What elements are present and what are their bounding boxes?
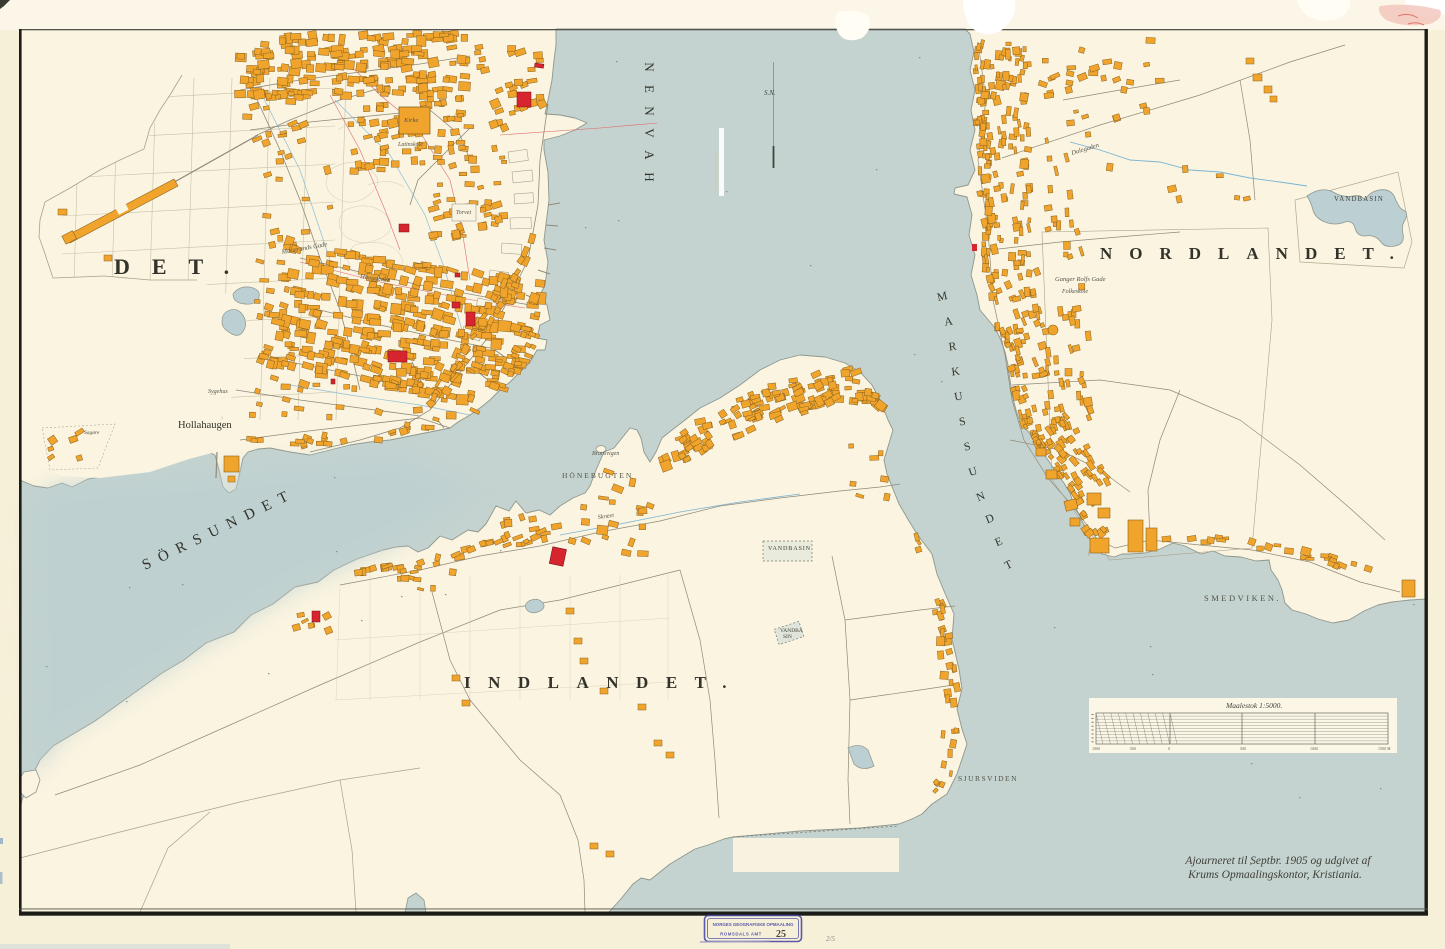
svg-text:Hollahaugen: Hollahaugen	[178, 420, 232, 431]
svg-text:Brunsvigen: Brunsvigen	[592, 451, 619, 457]
svg-text:500: 500	[1240, 746, 1246, 751]
svg-text:ROMSDALS AMT: ROMSDALS AMT	[720, 931, 762, 936]
svg-text:A: A	[642, 150, 657, 160]
svg-text:SMEDVIKEN.: SMEDVIKEN.	[1204, 593, 1281, 603]
svg-text:Krums Opmaalingskontor, Kristi: Krums Opmaalingskontor, Kristiania.	[1187, 869, 1362, 881]
svg-text:500: 500	[1130, 746, 1136, 751]
svg-text:1000: 1000	[1092, 746, 1100, 751]
svg-text:Sagøre: Sagøre	[84, 430, 100, 436]
svg-text:Maalestok 1:5000.: Maalestok 1:5000.	[1225, 701, 1282, 710]
svg-text:Folkeskole: Folkeskole	[1061, 289, 1088, 295]
svg-text:DET.: DET.	[114, 254, 251, 279]
svg-text:NORGES GEOGRAFISKE OPMAALING: NORGES GEOGRAFISKE OPMAALING	[713, 922, 794, 927]
svg-text:1500 M.: 1500 M.	[1378, 746, 1391, 751]
svg-text:2/5: 2/5	[826, 935, 835, 943]
svg-text:H: H	[642, 172, 657, 181]
svg-text:Torvet: Torvet	[456, 210, 471, 216]
svg-text:VANDBASIN: VANDBASIN	[768, 545, 811, 552]
svg-text:S.N.: S.N.	[764, 89, 776, 97]
svg-text:0: 0	[1168, 746, 1170, 751]
svg-text:E: E	[642, 85, 657, 93]
svg-text:Ajourneret til Septbr. 1905 og: Ajourneret til Septbr. 1905 og udgivet a…	[1184, 855, 1372, 867]
svg-text:SJURSVIDEN: SJURSVIDEN	[958, 774, 1018, 783]
svg-text:V: V	[642, 128, 657, 138]
svg-text:N: N	[642, 62, 657, 72]
svg-text:NORDLANDET.: NORDLANDET.	[1100, 244, 1411, 263]
svg-text:25: 25	[776, 929, 786, 940]
svg-text:SIN: SIN	[783, 634, 792, 640]
svg-text:1000: 1000	[1310, 746, 1318, 751]
svg-text:Latinskole: Latinskole	[397, 142, 423, 148]
svg-text:VANDBASIN: VANDBASIN	[1334, 196, 1384, 203]
svg-text:N: N	[642, 106, 657, 116]
svg-text:HÖNEBUGTEN: HÖNEBUGTEN	[562, 471, 633, 480]
svg-text:Sygehus: Sygehus	[208, 389, 228, 395]
svg-text:INDLANDET.: INDLANDET.	[464, 673, 744, 692]
svg-text:Kirke: Kirke	[403, 117, 419, 124]
svg-text:Ganger Rolfs Gade: Ganger Rolfs Gade	[1055, 276, 1106, 283]
